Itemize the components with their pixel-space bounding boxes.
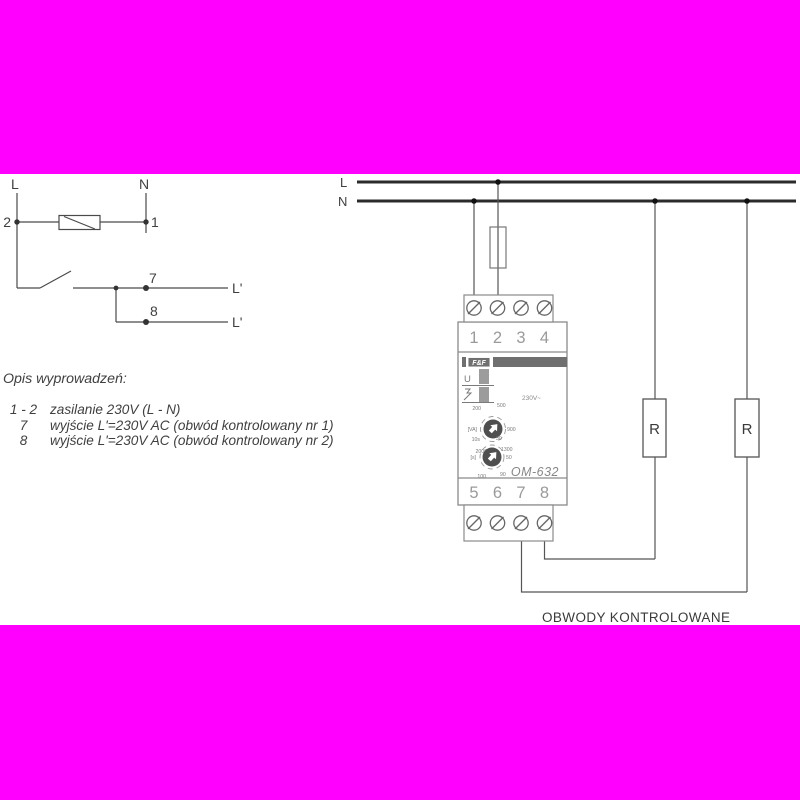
- device-terminal-8: 8: [540, 484, 549, 502]
- knob-tick: 90: [500, 472, 506, 478]
- knob-tick: 500: [497, 403, 506, 409]
- led-u-label: U: [464, 374, 471, 385]
- controlled-loads: R R: [643, 399, 759, 457]
- device-terminal-2: 2: [493, 329, 502, 347]
- junction-dot: [652, 198, 658, 204]
- ff-logo: F&F: [472, 360, 486, 367]
- list-item: 7 wyjście L'=230V AC (obwód kontrolowany…: [0, 418, 334, 434]
- left-circuit-labels: L N 2 1 7 8 L' L': [3, 176, 242, 330]
- load-2-label: R: [742, 421, 753, 438]
- left-circuit-junctions: [14, 219, 149, 325]
- left-circuit-schematic: [17, 193, 228, 322]
- knob-tick: 100: [477, 474, 486, 480]
- device-om632: 1 2 3 4 5 6 7 8 F&F U: [458, 295, 567, 541]
- screw-terminal-icon: [514, 301, 528, 315]
- screw-terminal-icon: [490, 301, 504, 315]
- terminal-numbers: 1 - 2: [0, 402, 47, 418]
- screw-terminal-icon: [467, 301, 481, 315]
- junction-dot: [114, 286, 119, 291]
- knob-tick: 30: [496, 436, 502, 442]
- magenta-mask-bottom: [0, 625, 800, 800]
- device-terminal-4: 4: [540, 329, 549, 347]
- knob-tick: 50: [506, 455, 512, 461]
- knob-tick: 900: [507, 427, 516, 433]
- terminal-numbers: 7: [0, 418, 47, 434]
- terminal-numbers: 8: [0, 433, 47, 449]
- device-model-label: OM-632: [511, 465, 559, 479]
- label-l: L: [11, 176, 19, 192]
- junction-dot: [744, 198, 750, 204]
- mains-labels: L N: [338, 175, 347, 209]
- label-terminal-8: 8: [150, 303, 158, 319]
- label-terminal-7: 7: [149, 270, 157, 286]
- device-terminal-3: 3: [516, 329, 525, 347]
- switch-blade-icon: [40, 271, 71, 288]
- device-terminal-6: 6: [493, 484, 502, 502]
- label-line-n: N: [338, 194, 347, 209]
- terminal-function: wyjście L'=230V AC (obwód kontrolowany n…: [50, 433, 334, 449]
- screw-terminal-icon: [490, 516, 504, 530]
- knob-unit: [VA]: [468, 427, 478, 433]
- screw-terminal-icon: [537, 301, 551, 315]
- led-load-icon: [479, 387, 489, 402]
- screw-terminal-icon: [514, 516, 528, 530]
- led-u-icon: [479, 369, 489, 384]
- junction-dot: [143, 219, 148, 224]
- knob-tick: 10s: [472, 437, 481, 443]
- device-terminal-1: 1: [469, 329, 478, 347]
- label-lprime-1: L': [232, 280, 242, 296]
- label-terminal-1: 1: [151, 214, 159, 230]
- device-voltage-label: 230V~: [522, 395, 541, 402]
- knob-tick: 1300: [501, 447, 513, 453]
- terminal-8-dot: [143, 319, 149, 325]
- list-item: 8 wyjście L'=230V AC (obwód kontrolowany…: [0, 433, 334, 449]
- label-lprime-2: L': [232, 314, 242, 330]
- label-n: N: [139, 176, 149, 192]
- device-brand-band: F&F: [462, 357, 567, 367]
- label-terminal-2: 2: [3, 214, 11, 230]
- wire-terminal8-to-load1: [545, 523, 656, 559]
- mains-lines: [357, 182, 796, 201]
- list-item: 1 - 2 zasilanie 230V (L - N): [0, 402, 334, 418]
- supply-box-slash: [64, 217, 95, 230]
- magenta-mask-top: [0, 0, 800, 174]
- knob-tick: 200: [472, 406, 481, 412]
- screw-terminal-icon: [537, 516, 551, 530]
- description-title: Opis wyprowadzeń:: [3, 371, 127, 387]
- junction-dot: [14, 219, 19, 224]
- terminal-function: wyjście L'=230V AC (obwód kontrolowany n…: [50, 418, 334, 434]
- label-line-l: L: [340, 175, 347, 190]
- load-1-label: R: [649, 421, 660, 438]
- device-terminal-5: 5: [469, 484, 478, 502]
- manual-page: L N 2 1 7 8 L' L' L N: [0, 0, 800, 800]
- controlled-circuits-caption: OBWODY KONTROLOWANE: [542, 610, 730, 625]
- screw-terminal-icon: [467, 516, 481, 530]
- device-terminal-7: 7: [516, 484, 525, 502]
- band-main: [493, 357, 567, 367]
- junction-dot: [495, 179, 501, 185]
- junction-dot: [471, 198, 477, 204]
- wire-terminal7-to-load2: [522, 523, 748, 592]
- terminal-function: zasilanie 230V (L - N): [50, 402, 180, 418]
- terminal-description-list: 1 - 2 zasilanie 230V (L - N) 7 wyjście L…: [0, 402, 334, 449]
- knob-unit: [s]: [471, 455, 477, 461]
- band-stub: [462, 357, 466, 367]
